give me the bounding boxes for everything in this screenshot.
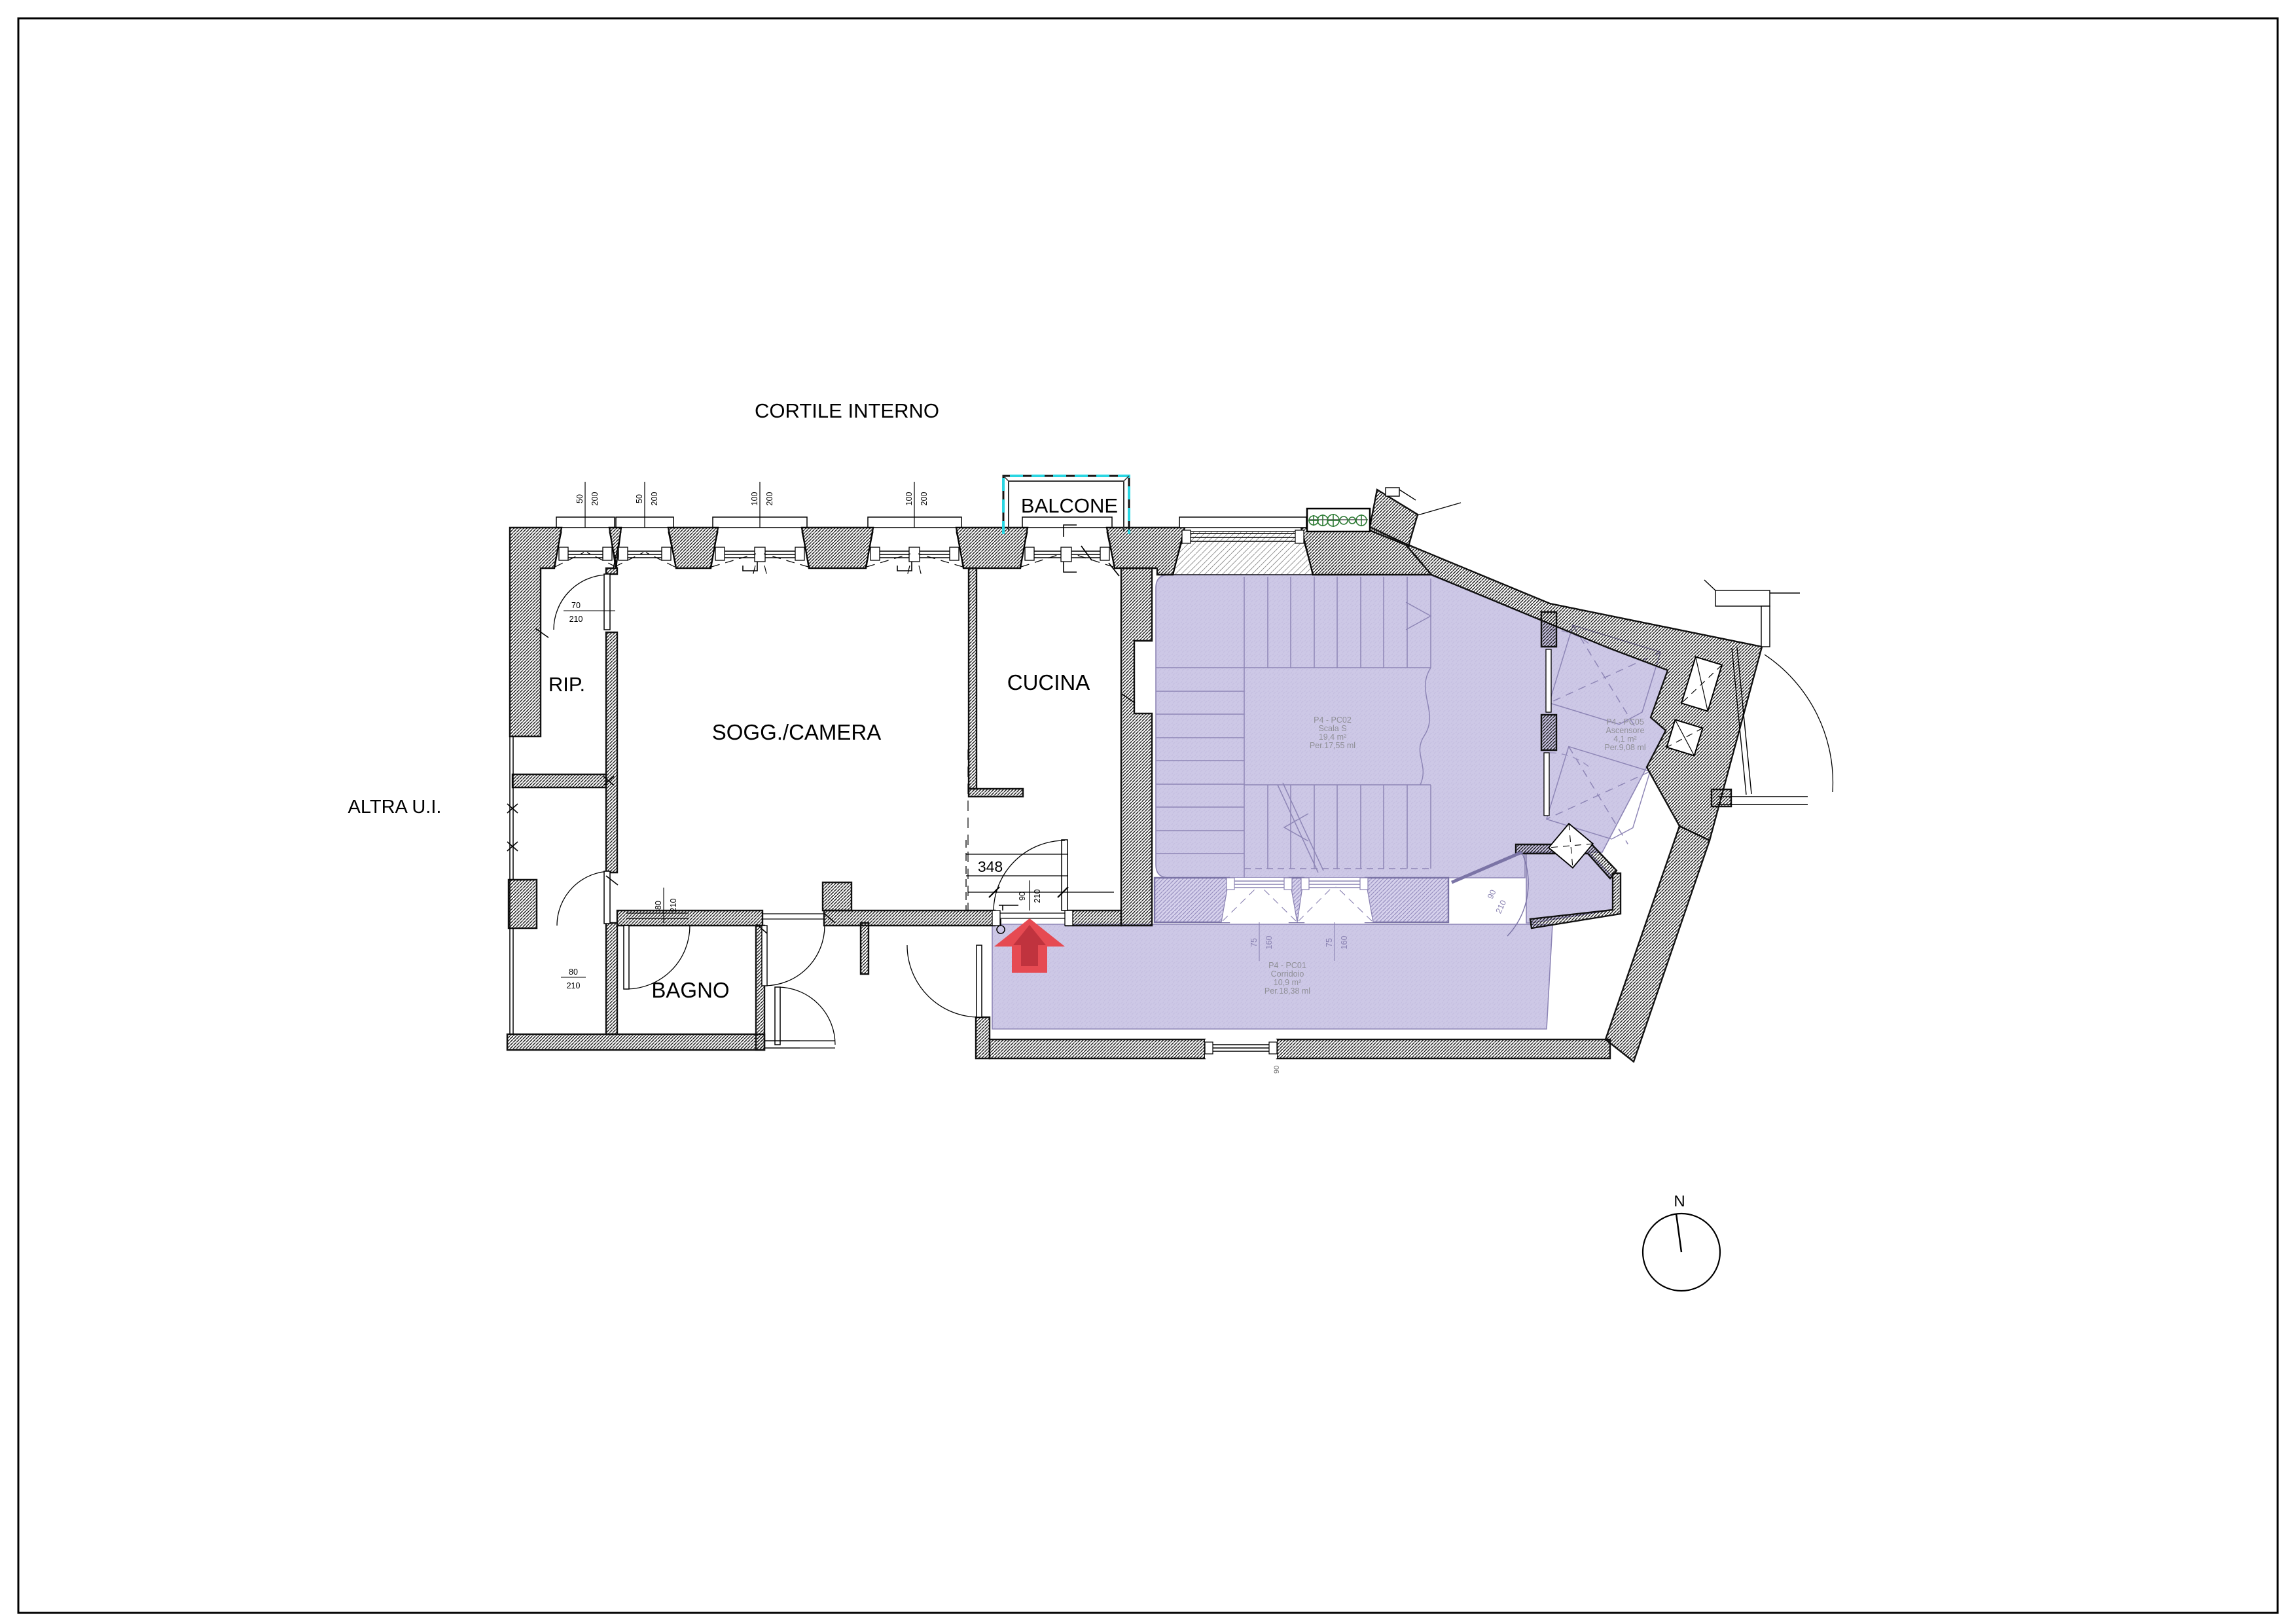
svg-text:CORTILE INTERNO: CORTILE INTERNO <box>755 399 939 422</box>
svg-text:ALTRA U.I.: ALTRA U.I. <box>348 797 442 818</box>
svg-text:BALCONE: BALCONE <box>1021 494 1118 517</box>
svg-text:200: 200 <box>650 492 659 506</box>
svg-text:RIP.: RIP. <box>548 673 585 696</box>
svg-text:P4 - PC05: P4 - PC05 <box>1606 717 1644 727</box>
svg-text:50: 50 <box>635 494 644 503</box>
svg-text:Scala S: Scala S <box>1318 724 1346 733</box>
svg-text:BAGNO: BAGNO <box>651 978 729 1002</box>
svg-text:Corridoio: Corridoio <box>1271 969 1304 979</box>
svg-text:100: 100 <box>905 492 914 506</box>
svg-text:4,1 m²: 4,1 m² <box>1613 734 1636 744</box>
svg-text:N: N <box>1674 1193 1685 1210</box>
svg-text:348: 348 <box>978 858 1003 875</box>
svg-text:210: 210 <box>669 899 678 912</box>
svg-text:80: 80 <box>569 967 578 977</box>
svg-text:10,9 m²: 10,9 m² <box>1274 978 1301 987</box>
svg-text:Per.17,55 ml: Per.17,55 ml <box>1310 741 1355 750</box>
svg-text:210: 210 <box>567 981 581 990</box>
svg-text:Per.18,38 ml: Per.18,38 ml <box>1265 986 1310 996</box>
svg-text:210: 210 <box>1033 890 1042 903</box>
svg-text:70: 70 <box>571 601 581 610</box>
svg-text:100: 100 <box>750 492 759 506</box>
svg-text:90: 90 <box>1018 892 1027 901</box>
svg-text:75: 75 <box>1249 938 1259 947</box>
svg-text:P4 - PC02: P4 - PC02 <box>1314 715 1352 725</box>
svg-text:160: 160 <box>1340 936 1349 950</box>
svg-text:75: 75 <box>1325 938 1334 947</box>
svg-text:200: 200 <box>920 492 929 506</box>
svg-text:200: 200 <box>765 492 774 506</box>
svg-text:50: 50 <box>575 494 584 503</box>
svg-text:160: 160 <box>1265 936 1274 950</box>
svg-text:210: 210 <box>569 615 583 624</box>
svg-text:Per.9,08 ml: Per.9,08 ml <box>1604 743 1645 752</box>
svg-text:SOGG./CAMERA: SOGG./CAMERA <box>712 720 882 744</box>
svg-text:90: 90 <box>1273 1066 1281 1074</box>
svg-text:80: 80 <box>654 901 663 910</box>
svg-text:CUCINA: CUCINA <box>1007 670 1090 695</box>
svg-text:P4 - PC01: P4 - PC01 <box>1268 961 1306 970</box>
svg-text:Ascensore: Ascensore <box>1605 726 1644 735</box>
svg-text:200: 200 <box>590 492 600 506</box>
svg-text:19,4 m²: 19,4 m² <box>1319 732 1346 742</box>
